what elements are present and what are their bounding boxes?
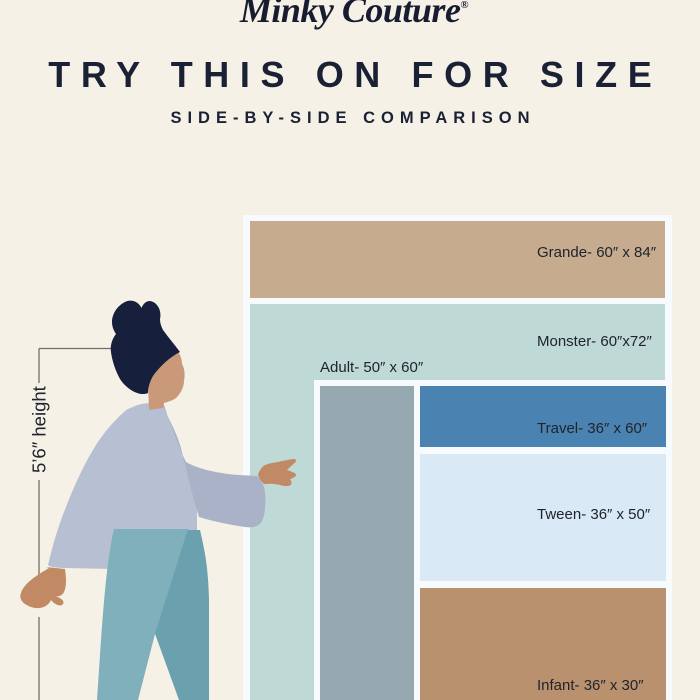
svg-text:5’6″ height: 5’6″ height <box>29 386 50 473</box>
